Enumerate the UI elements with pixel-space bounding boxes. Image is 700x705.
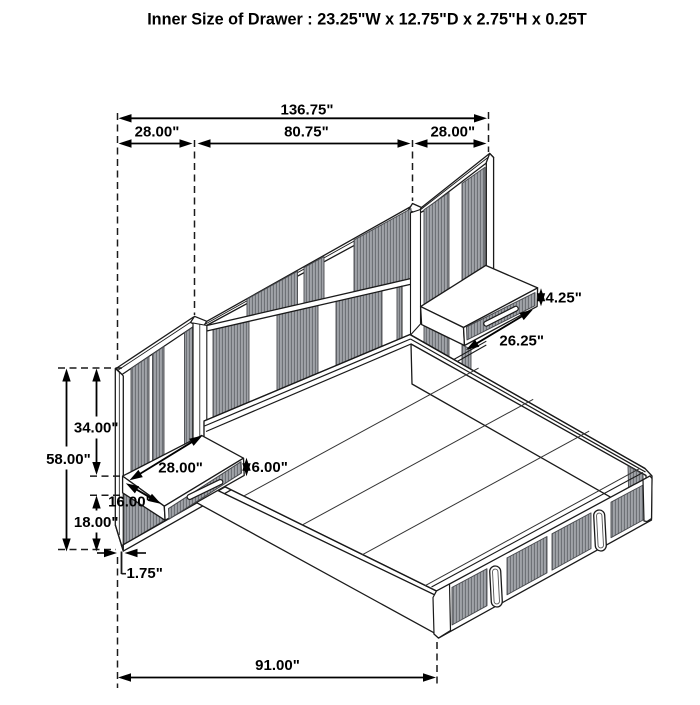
svg-text:91.00": 91.00" xyxy=(255,657,300,674)
svg-text:6.00": 6.00" xyxy=(252,459,288,476)
svg-text:4.25": 4.25" xyxy=(546,290,582,307)
svg-text:28.00": 28.00" xyxy=(158,460,203,477)
svg-text:Inner Size of Drawer : 23.25"W: Inner Size of Drawer : 23.25"W x 12.75"D… xyxy=(147,11,587,29)
svg-text:16.00": 16.00" xyxy=(108,494,153,511)
svg-text:1.75": 1.75" xyxy=(127,565,163,582)
svg-text:26.25": 26.25" xyxy=(499,333,544,350)
svg-text:28.00": 28.00" xyxy=(430,124,475,141)
svg-text:80.75": 80.75" xyxy=(284,124,329,141)
svg-text:58.00": 58.00" xyxy=(46,451,91,468)
svg-text:18.00": 18.00" xyxy=(74,514,119,531)
svg-text:34.00": 34.00" xyxy=(74,420,119,437)
svg-text:136.75": 136.75" xyxy=(281,102,334,119)
svg-text:28.00": 28.00" xyxy=(135,124,180,141)
